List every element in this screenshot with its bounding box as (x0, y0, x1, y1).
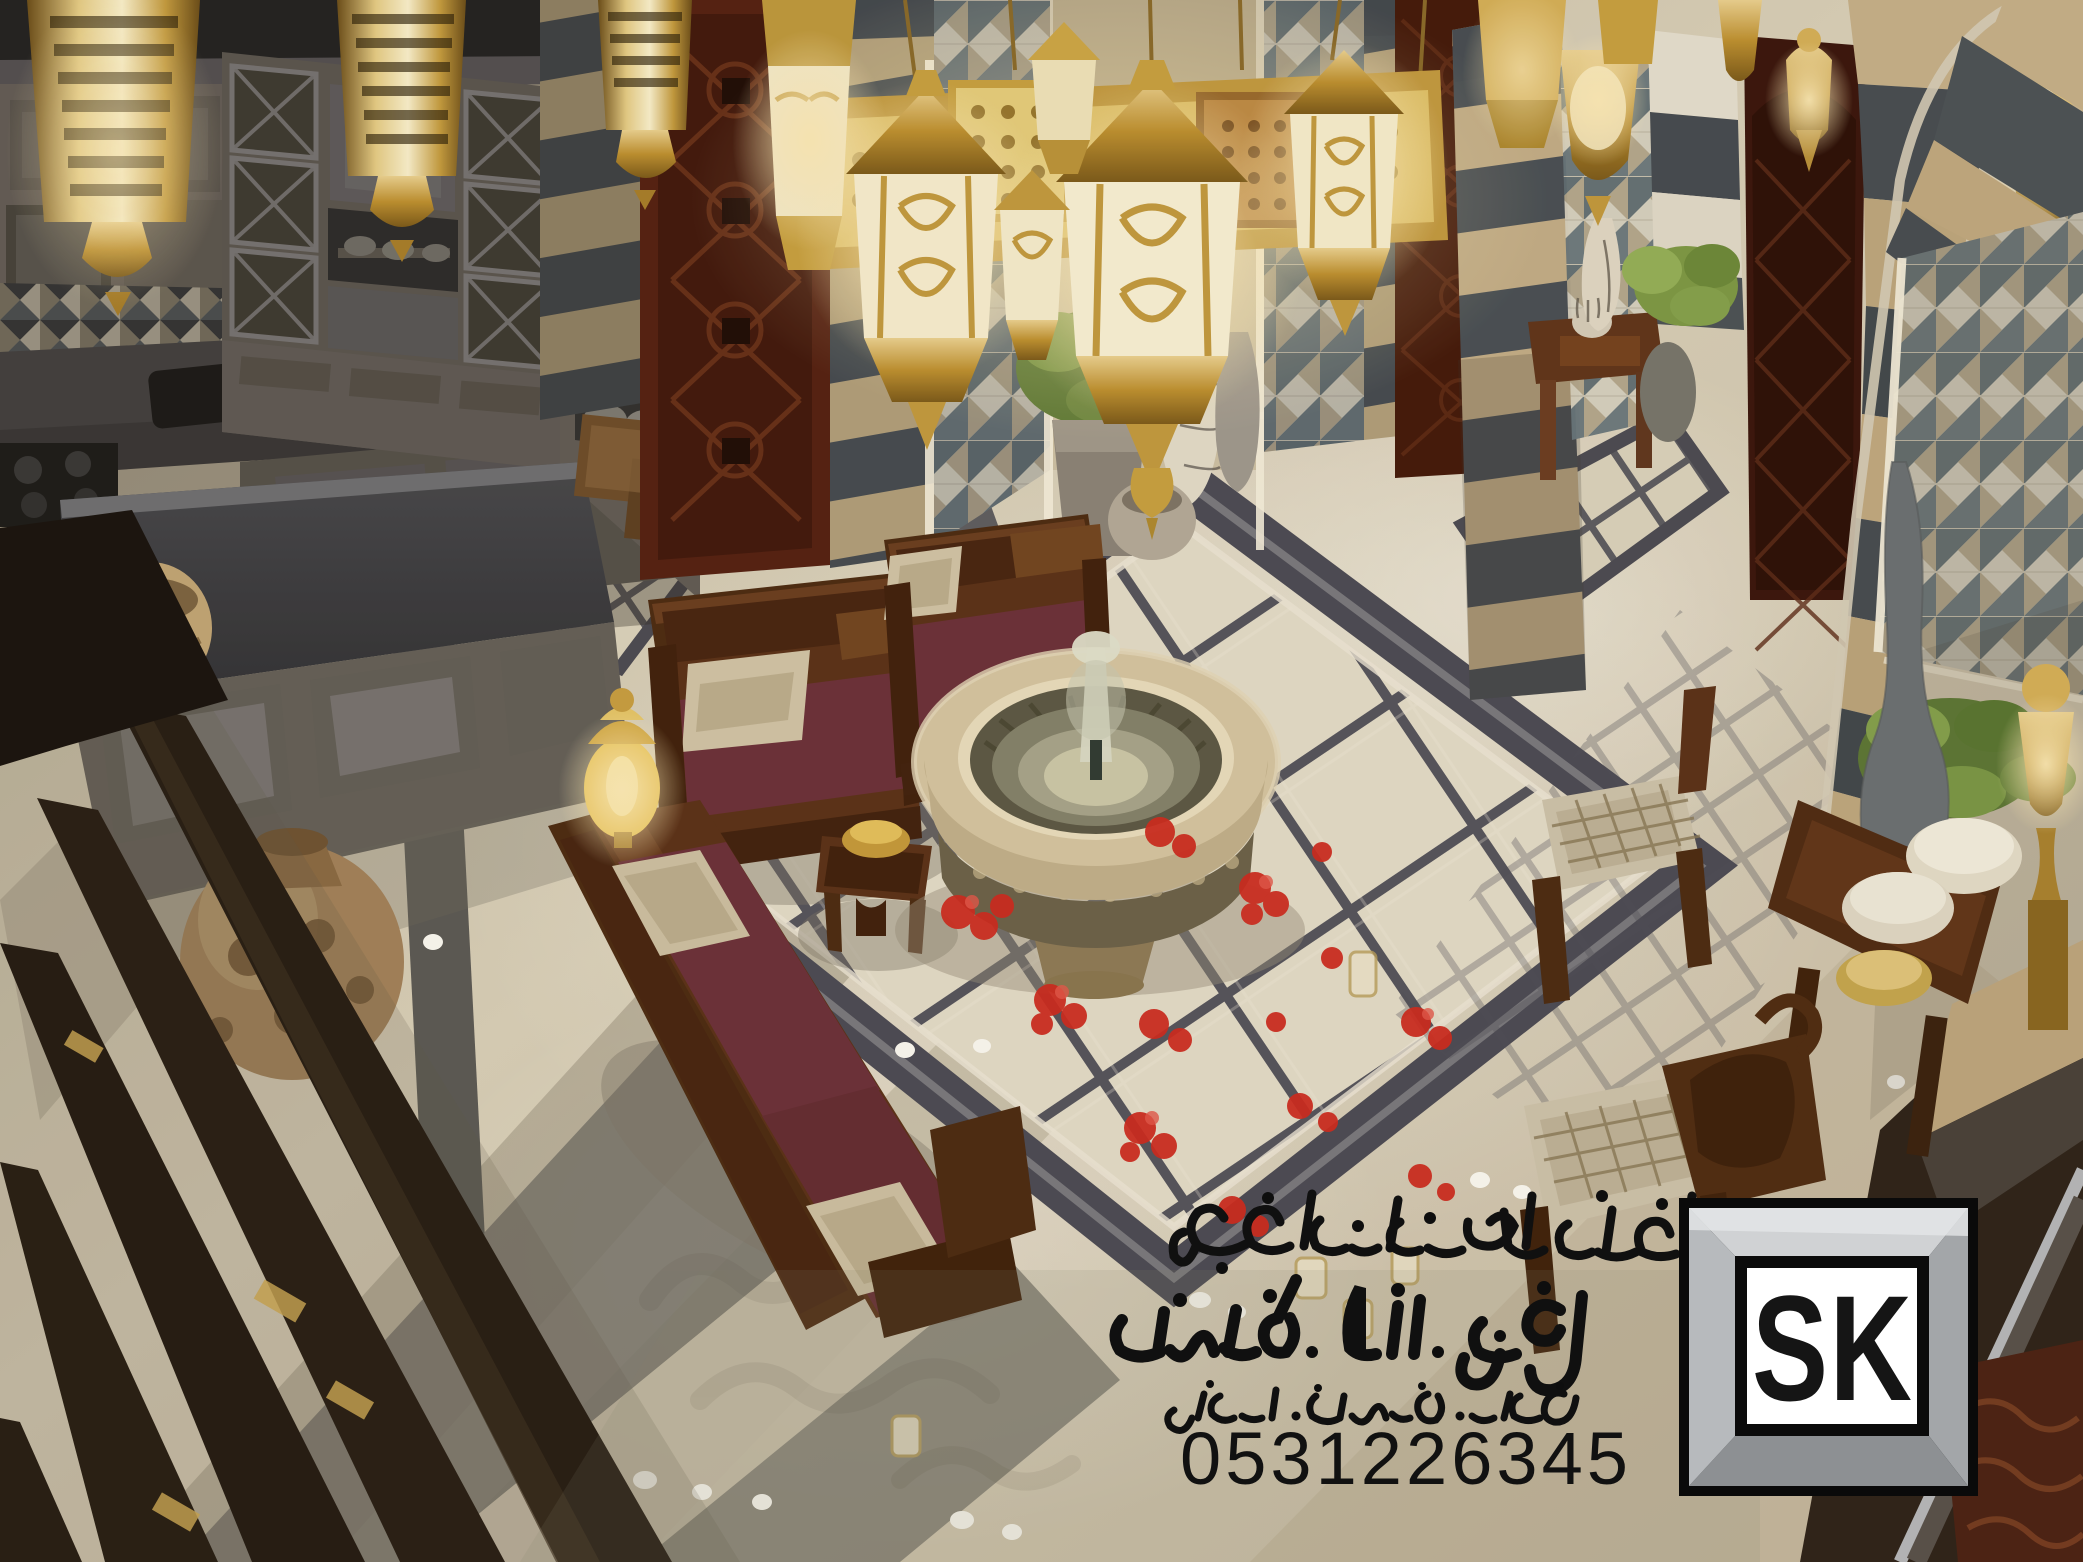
svg-text:0531226345: 0531226345 (1180, 1417, 1632, 1500)
svg-text:SK: SK (1752, 1265, 1913, 1433)
